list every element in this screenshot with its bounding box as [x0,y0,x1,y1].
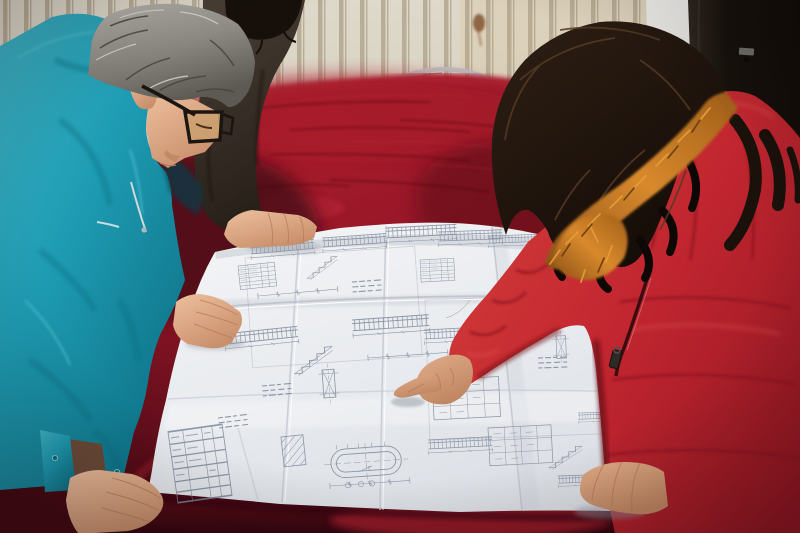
vignette [0,0,800,533]
photo-scene: Workers reviewing construction blueprint… [0,0,800,533]
photo-canvas: Workers reviewing construction blueprint… [0,0,800,533]
